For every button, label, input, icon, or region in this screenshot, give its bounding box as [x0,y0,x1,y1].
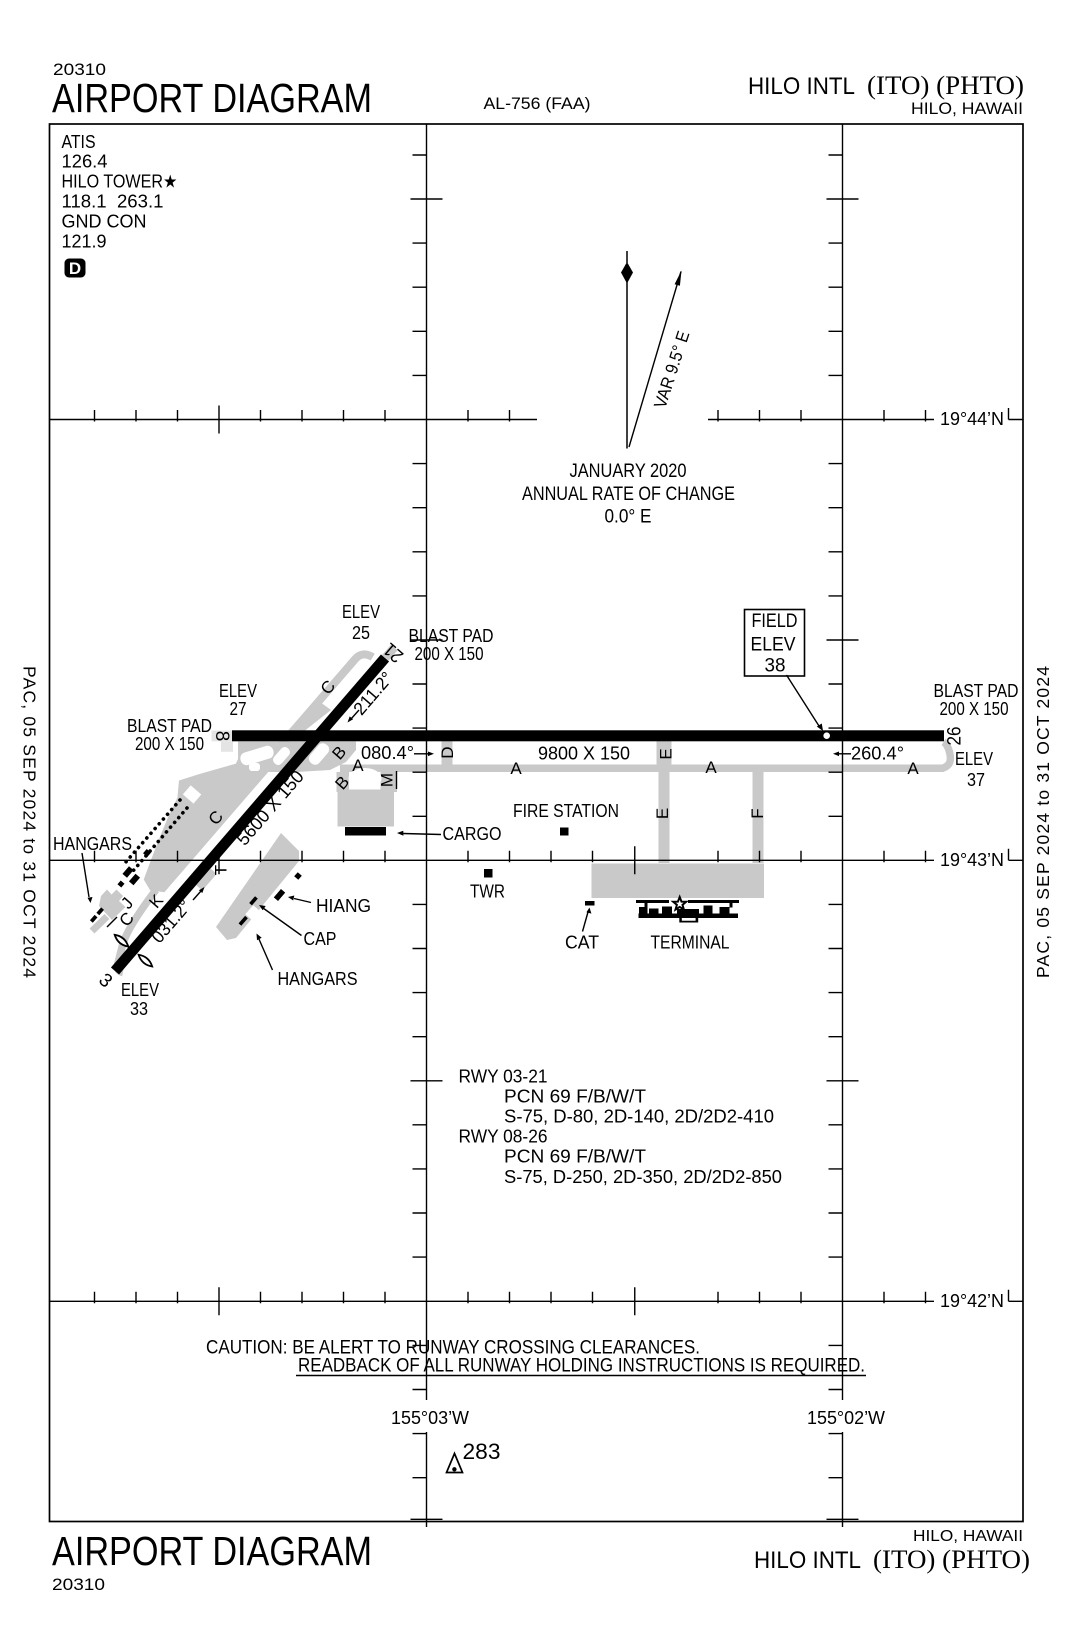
svg-text:26: 26 [945,727,966,746]
svg-text:38: 38 [765,655,786,677]
svg-text:TERMINAL: TERMINAL [651,933,730,953]
svg-text:PCN 69 F/B/W/T: PCN 69 F/B/W/T [504,1147,646,1167]
svg-text:27: 27 [230,699,247,719]
svg-text:A: A [907,759,919,778]
svg-text:AIRPORT DIAGRAM: AIRPORT DIAGRAM [52,75,372,121]
svg-text:F: F [748,808,767,818]
svg-text:CARGO: CARGO [443,824,502,844]
svg-text:E: E [657,748,676,759]
svg-text:FIRE STATION: FIRE STATION [513,801,619,821]
svg-text:HILO INTL: HILO INTL [748,73,855,100]
svg-text:BLAST PAD: BLAST PAD [409,626,494,646]
svg-text:JANUARY 2020: JANUARY 2020 [570,461,687,482]
svg-text:HILO INTL: HILO INTL [754,1547,861,1574]
svg-text:19°44’N: 19°44’N [940,409,1004,429]
svg-text:ELEV: ELEV [955,749,993,769]
svg-text:200 X 150: 200 X 150 [940,699,1009,719]
svg-text:155°02’W: 155°02’W [807,1407,886,1428]
svg-text:PAC, 05 SEP 2024 to 31 OCT: PAC, 05 SEP 2024 to 31 OCT 2024 [20,666,40,978]
svg-text:D: D [438,746,457,758]
svg-text:A: A [705,758,717,777]
svg-text:121.9: 121.9 [62,232,107,252]
svg-text:20310: 20310 [52,1575,105,1594]
svg-text:TWR: TWR [470,882,505,902]
svg-text:200 X 150: 200 X 150 [135,734,204,754]
svg-text:BLAST PAD: BLAST PAD [127,716,212,736]
svg-text:ELEV: ELEV [219,681,257,701]
svg-text:RWY 03-21: RWY 03-21 [459,1067,548,1087]
svg-text:T: T [212,865,231,875]
svg-text:200 X 150: 200 X 150 [415,644,484,664]
svg-text:080.4°: 080.4° [361,743,414,763]
svg-text:ELEV: ELEV [342,602,380,622]
svg-text:CAT: CAT [565,933,599,953]
svg-text:FIELD: FIELD [752,610,798,632]
svg-text:HILO TOWER★: HILO TOWER★ [62,172,178,192]
svg-text:HANGARS: HANGARS [53,834,132,854]
svg-text:126.4: 126.4 [62,152,108,172]
svg-text:E: E [653,808,672,819]
svg-text:PAC, 05 SEP 2024 to 31 OCT: PAC, 05 SEP 2024 to 31 OCT 2024 [1033,666,1053,978]
svg-text:S-75, D-80, 2D-140, 2D/2D2-410: S-75, D-80, 2D-140, 2D/2D2-410 [504,1107,774,1127]
svg-text:(ITO) (PHTO): (ITO) (PHTO) [873,1545,1030,1574]
svg-text:ELEV: ELEV [121,980,159,1000]
svg-text:ELEV: ELEV [751,634,796,656]
svg-text:0.0° E: 0.0° E [605,507,652,528]
svg-text:25: 25 [352,623,370,643]
svg-text:A: A [352,756,364,775]
svg-text:S-75, D-250, 2D-350, 2D/2D2-85: S-75, D-250, 2D-350, 2D/2D2-850 [504,1167,782,1187]
svg-text:PCN 69 F/B/W/T: PCN 69 F/B/W/T [504,1087,646,1107]
svg-text:9800 X 150: 9800 X 150 [538,744,630,764]
svg-text:CAP: CAP [304,929,337,949]
svg-text:155°03’W: 155°03’W [391,1407,470,1428]
svg-text:A: A [510,759,522,778]
svg-text:D: D [69,259,81,278]
svg-text:AL-756 (FAA): AL-756 (FAA) [484,95,591,113]
svg-text:260.4°: 260.4° [851,744,904,764]
svg-text:33: 33 [130,999,148,1019]
svg-text:HIANG: HIANG [316,896,371,916]
svg-text:AIRPORT DIAGRAM: AIRPORT DIAGRAM [52,1528,372,1574]
svg-text:118.1 263.1: 118.1 263.1 [62,192,164,212]
svg-text:BLAST PAD: BLAST PAD [934,681,1019,701]
svg-text:ATIS: ATIS [62,132,96,152]
svg-text:M: M [378,773,397,787]
svg-text:HILO, HAWAII: HILO, HAWAII [911,100,1023,118]
svg-text:GND CON: GND CON [62,212,147,232]
svg-text:HILO, HAWAII: HILO, HAWAII [913,1528,1023,1545]
svg-text:19°42’N: 19°42’N [940,1291,1004,1311]
svg-text:37: 37 [967,770,985,790]
svg-text:19°43’N: 19°43’N [940,850,1004,870]
svg-text:8: 8 [211,731,232,742]
svg-text:(ITO) (PHTO): (ITO) (PHTO) [867,71,1024,100]
svg-text:ANNUAL RATE OF CHANGE: ANNUAL RATE OF CHANGE [522,484,735,505]
svg-text:RWY 08-26: RWY 08-26 [459,1127,548,1147]
svg-text:READBACK OF ALL RUNWAY HOLDING: READBACK OF ALL RUNWAY HOLDING INSTRUCTI… [298,1355,865,1377]
svg-text:HANGARS: HANGARS [278,969,358,989]
svg-text:283: 283 [463,1439,501,1464]
